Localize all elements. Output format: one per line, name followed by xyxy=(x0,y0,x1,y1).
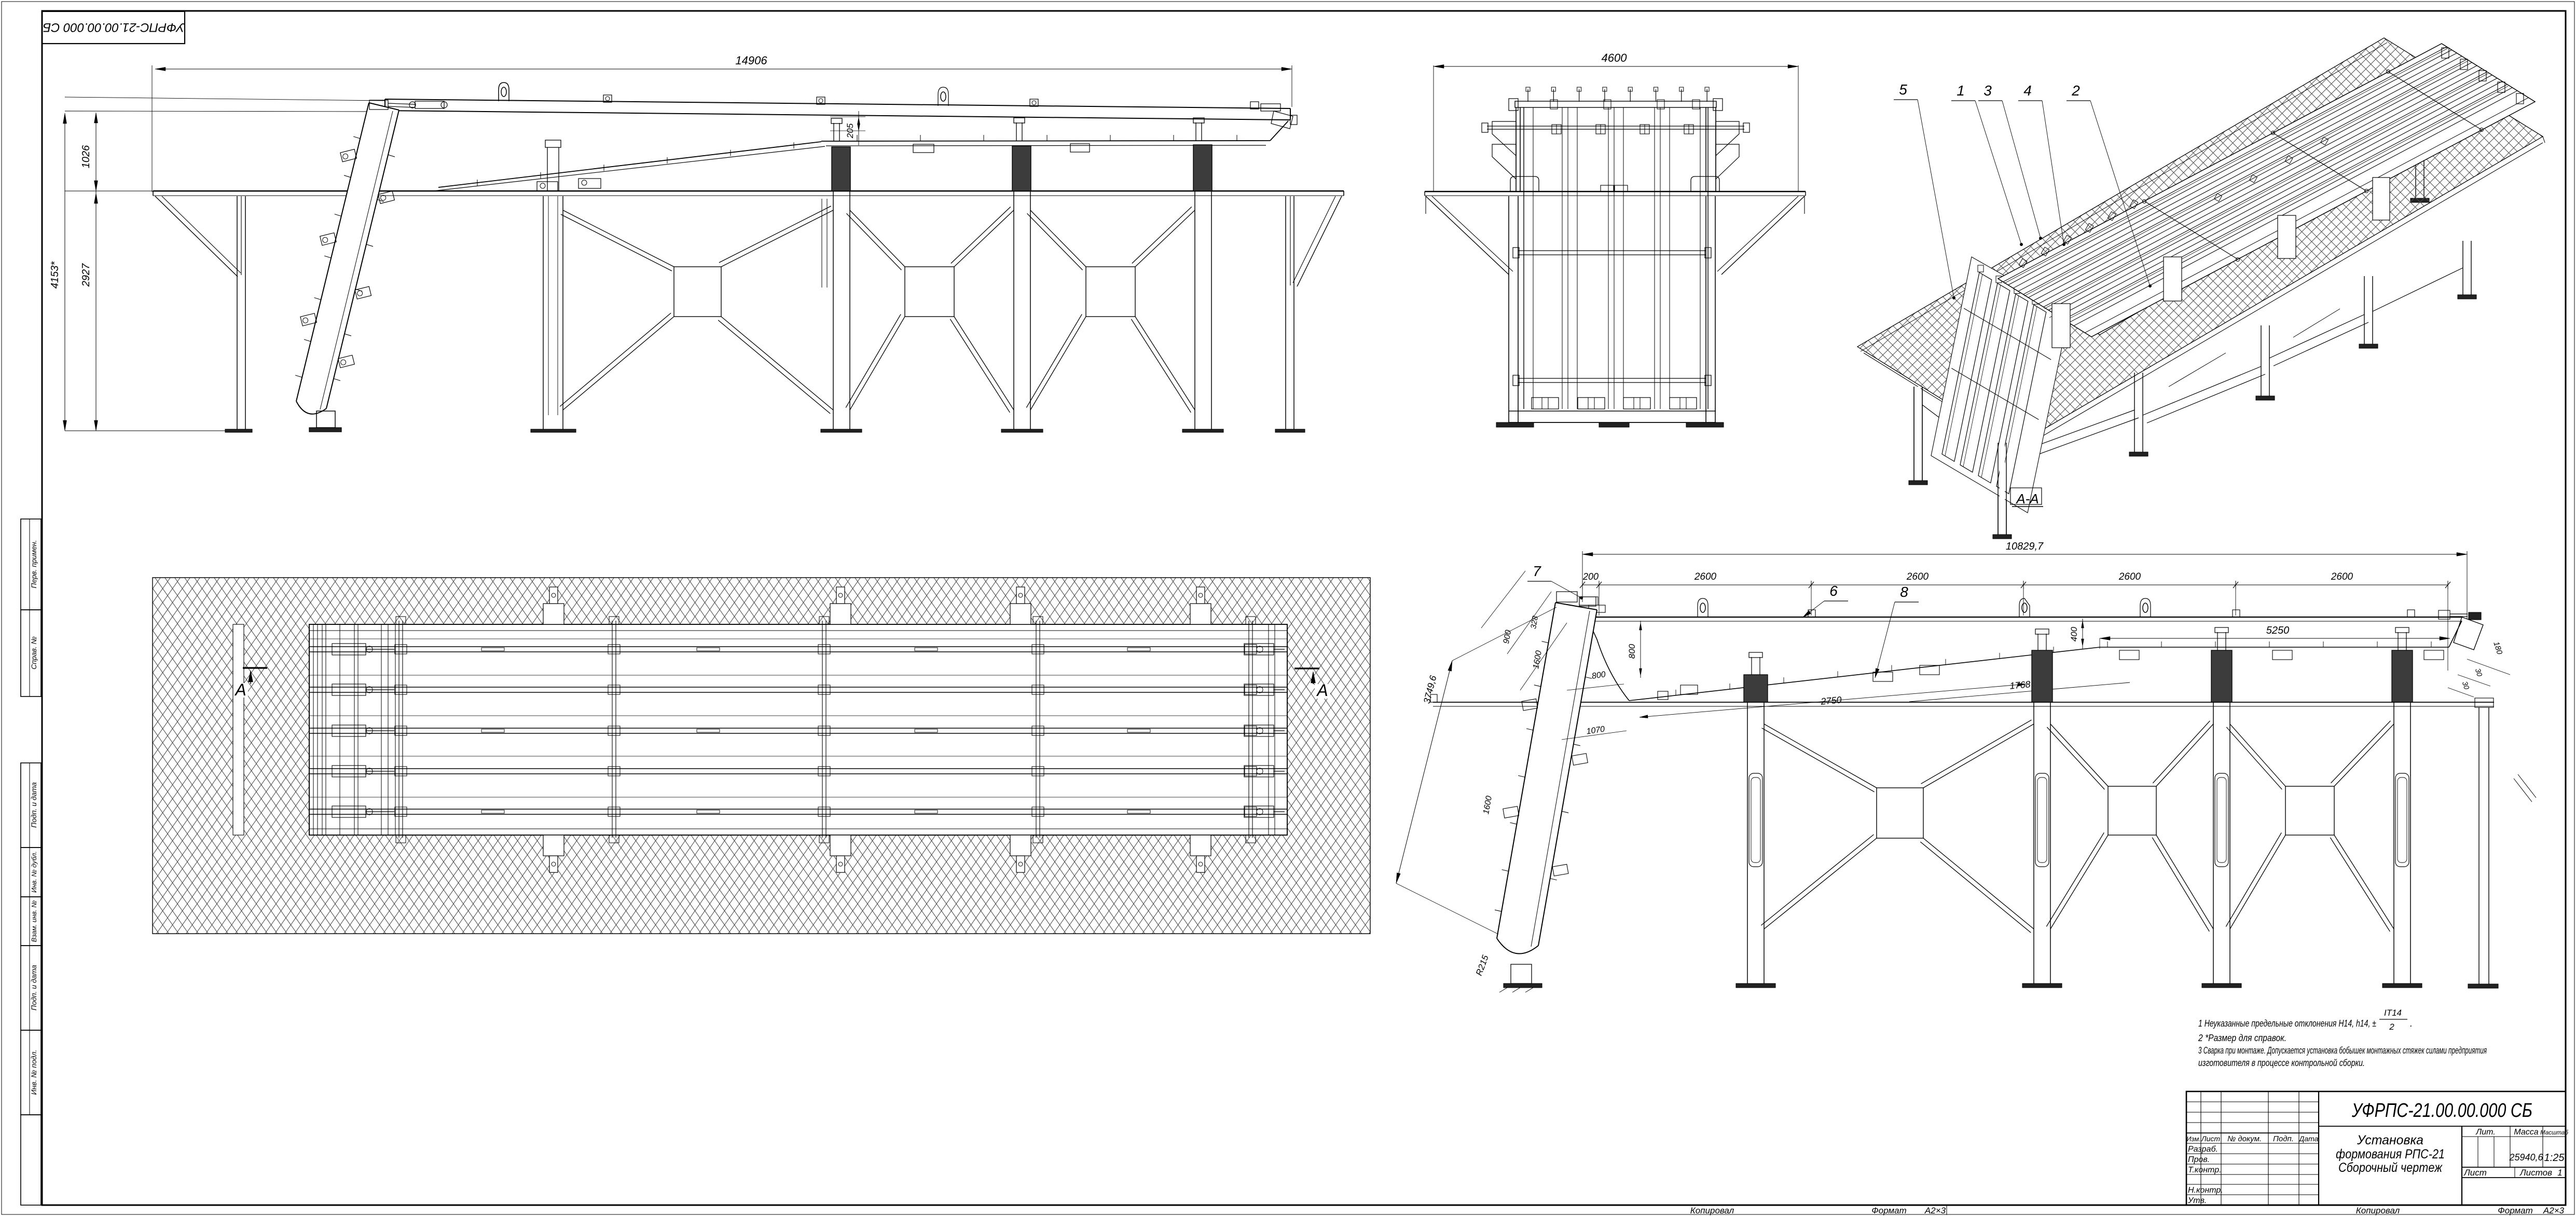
svg-text:4: 4 xyxy=(2023,83,2032,99)
svg-text:5: 5 xyxy=(1899,81,1907,98)
svg-text:Справ. №: Справ. № xyxy=(30,636,38,670)
svg-text:Листов: Листов xyxy=(2519,1168,2552,1178)
svg-text:Т.контр.: Т.контр. xyxy=(2188,1166,2222,1174)
svg-text:2 *Размер для справок.: 2 *Размер для справок. xyxy=(2198,1033,2286,1043)
svg-text:Инв. № дубл.: Инв. № дубл. xyxy=(30,851,38,893)
svg-text:Копировал: Копировал xyxy=(1690,1206,1734,1215)
svg-text:2600: 2600 xyxy=(2331,571,2353,582)
svg-text:Подп. и дата: Подп. и дата xyxy=(30,965,38,1010)
svg-text:Дата: Дата xyxy=(2298,1135,2319,1143)
svg-text:2927: 2927 xyxy=(80,263,92,287)
svg-text:Разраб.: Разраб. xyxy=(2188,1145,2218,1154)
svg-text:4153*: 4153* xyxy=(49,261,61,289)
svg-text:25940,6: 25940,6 xyxy=(2509,1152,2543,1163)
svg-text:A: A xyxy=(1316,681,1328,700)
svg-text:1026: 1026 xyxy=(80,145,92,168)
svg-text:А2×3: А2×3 xyxy=(1924,1206,1946,1215)
svg-text:УФРПС-21.00.00.000 СБ: УФРПС-21.00.00.000 СБ xyxy=(43,20,185,34)
svg-text:1: 1 xyxy=(1957,83,1965,99)
svg-text:изготовителя в процессе контро: изготовителя в процессе контрольной сбор… xyxy=(2198,1058,2365,1068)
svg-text:1 Неуказанные предельные откл: 1 Неуказанные предельные отклонения Н14,… xyxy=(2198,1018,2376,1029)
svg-text:Лит.: Лит. xyxy=(2475,1128,2495,1137)
svg-text:6: 6 xyxy=(1829,583,1838,599)
svg-text:Подп. и дата: Подп. и дата xyxy=(30,782,38,828)
svg-text:1: 1 xyxy=(2557,1168,2562,1178)
svg-text:2: 2 xyxy=(2389,1022,2394,1032)
svg-text:2: 2 xyxy=(2071,83,2080,99)
svg-text:Лист: Лист xyxy=(2201,1135,2220,1143)
svg-text:Подп.: Подп. xyxy=(2273,1135,2294,1143)
svg-text:Н.контр.: Н.контр. xyxy=(2188,1186,2223,1195)
svg-text:Взам. инв. №: Взам. инв. № xyxy=(30,900,38,942)
svg-text:5250: 5250 xyxy=(2266,625,2290,636)
svg-text:Формат: Формат xyxy=(1871,1206,1907,1215)
svg-text:А2×3: А2×3 xyxy=(2543,1206,2565,1215)
svg-text:4600: 4600 xyxy=(1602,51,1628,64)
svg-text:Сборочный чертеж: Сборочный чертеж xyxy=(2338,1160,2443,1175)
svg-text:А-А: А-А xyxy=(2015,491,2038,507)
svg-text:№ докум.: № докум. xyxy=(2227,1135,2262,1143)
svg-text:8: 8 xyxy=(1900,584,1908,600)
svg-text:формования РПС-21: формования РПС-21 xyxy=(2336,1147,2445,1162)
svg-text:Формат: Формат xyxy=(2498,1206,2533,1215)
svg-text:7: 7 xyxy=(1533,563,1541,579)
svg-text:Масштаб: Масштаб xyxy=(2540,1130,2568,1136)
svg-text:Масса: Масса xyxy=(2514,1128,2538,1137)
svg-text:Утв.: Утв. xyxy=(2187,1196,2207,1205)
svg-text:2600: 2600 xyxy=(2118,571,2141,582)
svg-text:IT14: IT14 xyxy=(2384,1008,2402,1018)
svg-text:200: 200 xyxy=(1582,571,1599,582)
svg-text:Установка: Установка xyxy=(2357,1133,2423,1147)
svg-text:1:25: 1:25 xyxy=(2544,1152,2565,1164)
svg-text:2600: 2600 xyxy=(1906,571,1929,582)
svg-text:A: A xyxy=(234,680,246,699)
svg-text:1768: 1768 xyxy=(2009,679,2031,691)
svg-text:Пров.: Пров. xyxy=(2188,1155,2210,1164)
svg-text:2600: 2600 xyxy=(1694,571,1717,582)
svg-text:800: 800 xyxy=(1627,644,1637,659)
svg-text:3: 3 xyxy=(1983,83,1992,99)
svg-text:Перв. примен.: Перв. примен. xyxy=(30,540,38,588)
svg-text:Инв. № подл.: Инв. № подл. xyxy=(30,1050,38,1095)
svg-text:10829,7: 10829,7 xyxy=(2006,541,2044,552)
svg-text:14906: 14906 xyxy=(735,54,767,67)
svg-text:3 Сварка при монтаже. Допуска: 3 Сварка при монтаже. Допускается устано… xyxy=(2198,1045,2487,1056)
svg-text:УФРПС-21.00.00.000 СБ: УФРПС-21.00.00.000 СБ xyxy=(2351,1100,2532,1122)
svg-text:Лист: Лист xyxy=(2463,1168,2487,1178)
svg-text:400: 400 xyxy=(2069,626,2079,641)
svg-text:Копировал: Копировал xyxy=(2356,1206,2400,1215)
svg-text:Изм.: Изм. xyxy=(2186,1135,2201,1143)
svg-text:.: . xyxy=(2410,1018,2413,1029)
